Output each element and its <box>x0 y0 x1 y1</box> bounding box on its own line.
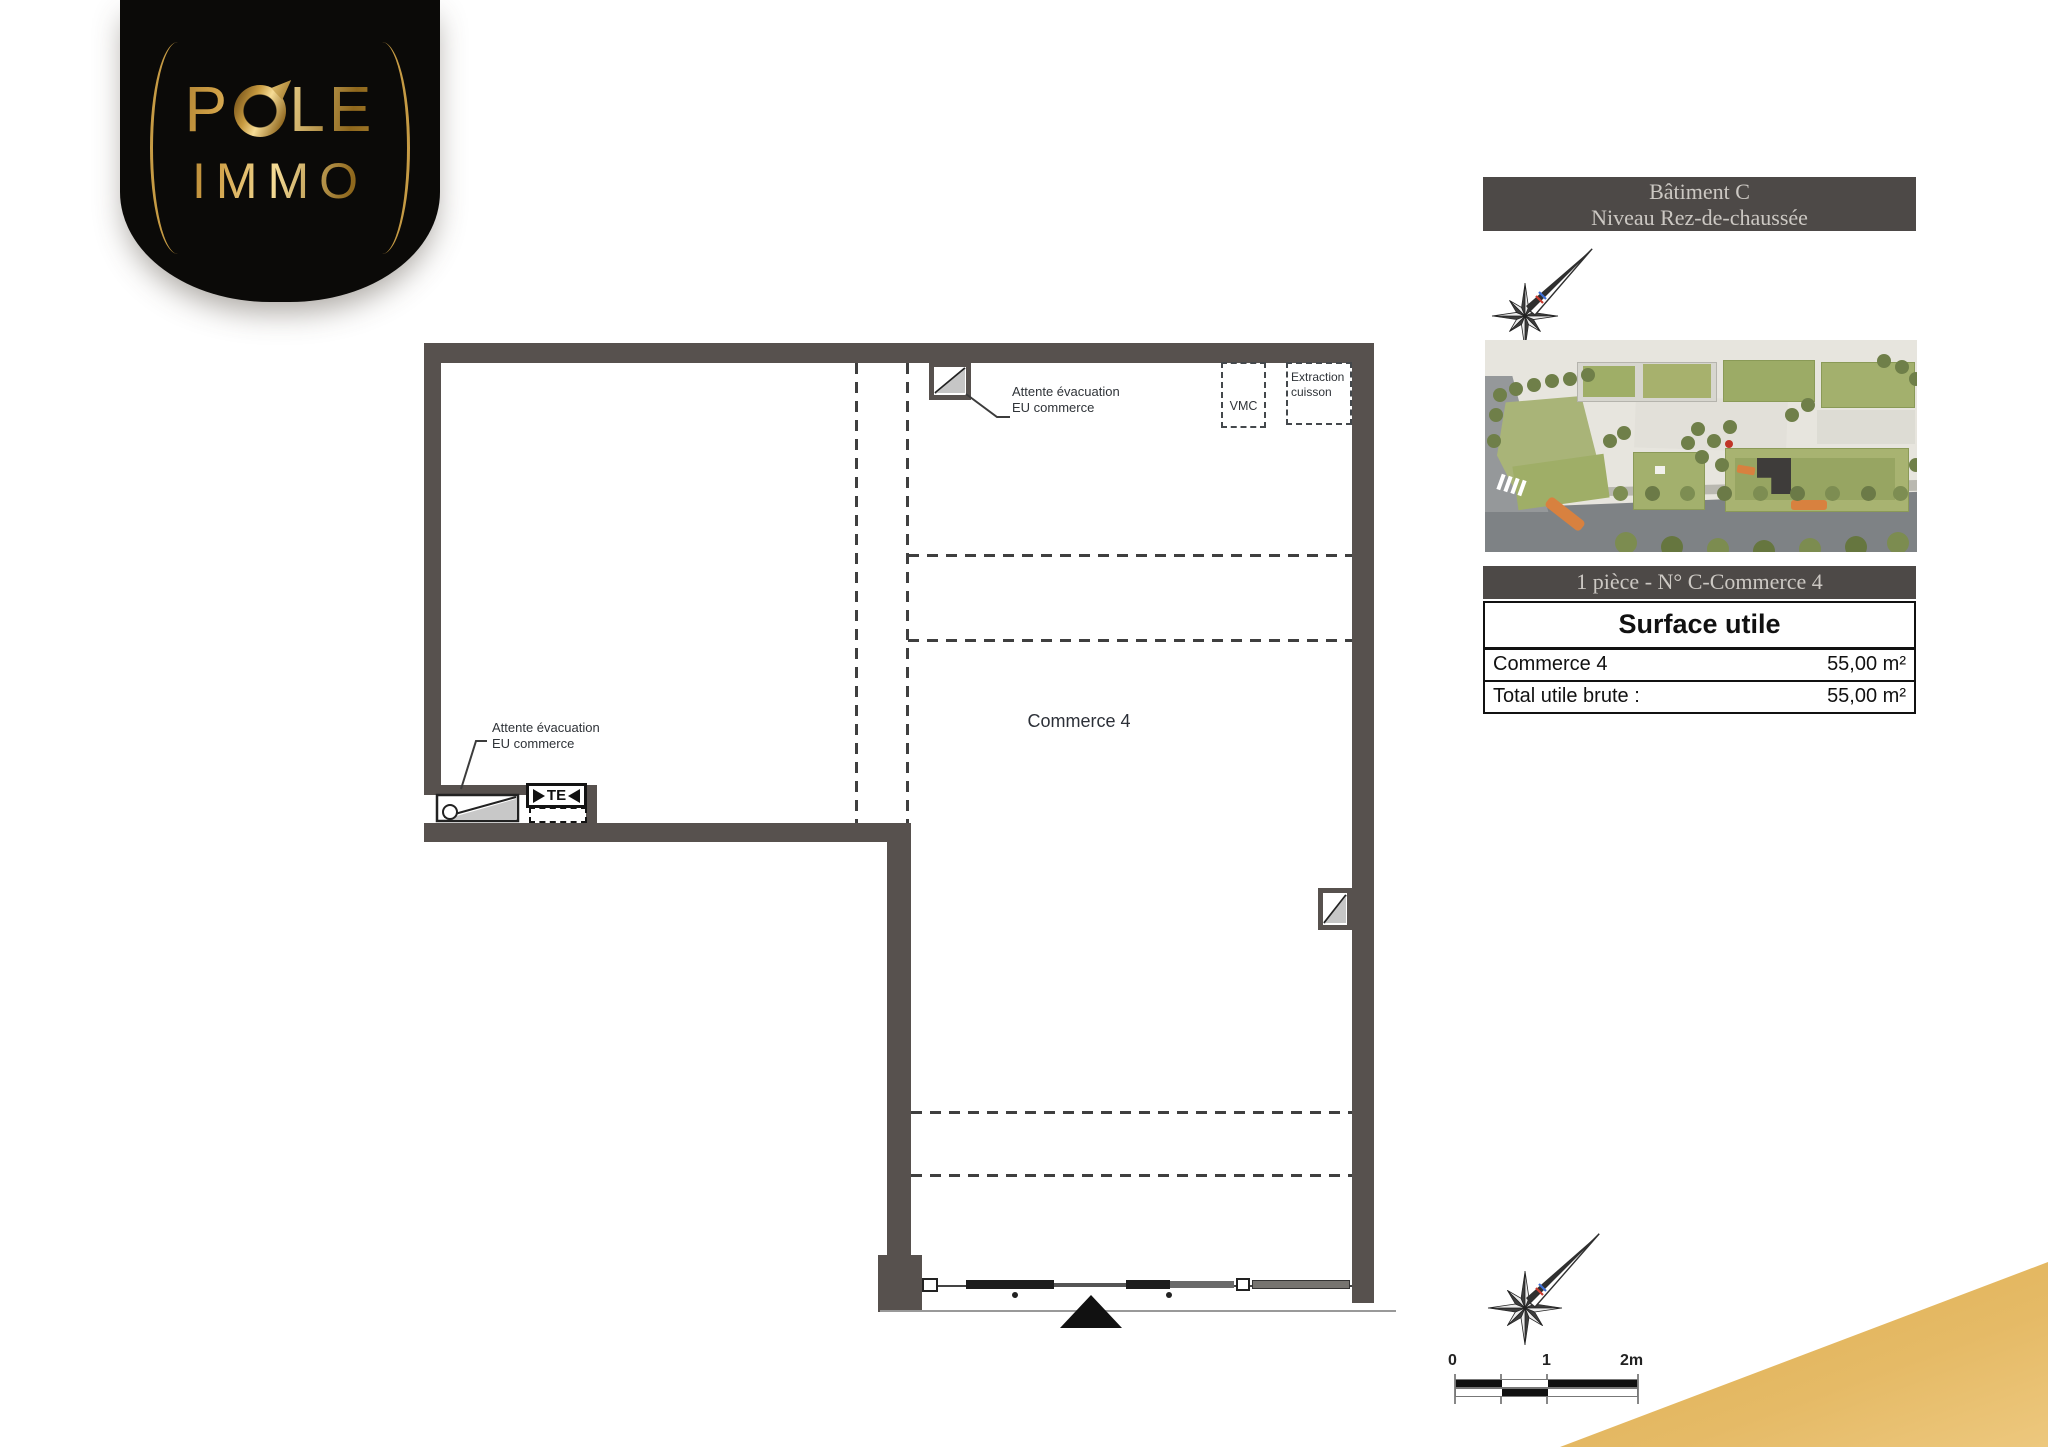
door-handle-dot <box>1166 1292 1172 1298</box>
aerial-shape <box>1680 486 1695 501</box>
aerial-shape <box>1487 434 1501 448</box>
te-meter-box: TE <box>526 783 587 808</box>
annotation-left: Attente évacuation EU commerce <box>492 720 600 752</box>
aerial-shape <box>1691 422 1705 436</box>
dashed-line-horizontal-4 <box>911 1174 1352 1177</box>
wall-bottom-left <box>424 823 911 842</box>
table-row: Commerce 4 55,00 m² <box>1485 650 1914 680</box>
aerial-shape <box>1723 420 1737 434</box>
table-row: Total utile brute : 55,00 m² <box>1485 680 1914 712</box>
aerial-shape <box>1643 364 1711 398</box>
ground-line <box>880 1310 1396 1312</box>
row-label: Total utile brute : <box>1493 685 1640 708</box>
aerial-shape <box>1493 388 1507 402</box>
aerial-shape <box>1545 374 1559 388</box>
logo-ring-o-icon <box>234 85 286 137</box>
aerial-site-view <box>1485 340 1917 552</box>
compass-rose-icon <box>1450 1212 1615 1357</box>
wall-inner-vertical <box>887 842 911 1255</box>
brochure-page: PLE IMMO VMC Extraction cuisson T <box>0 0 2048 1447</box>
storefront-panel <box>966 1280 1054 1289</box>
aerial-shape <box>1681 436 1695 450</box>
aerial-shape <box>1661 536 1683 552</box>
extraction-label-line2: cuisson <box>1291 385 1350 400</box>
aerial-shape <box>1715 458 1729 472</box>
aerial-shape <box>1613 486 1628 501</box>
aerial-shape <box>1861 486 1876 501</box>
aerial-shape <box>1753 486 1768 501</box>
panel-header: Bâtiment C Niveau Rez-de-chaussée <box>1483 177 1916 231</box>
extraction-label-line1: Extraction <box>1291 370 1350 385</box>
aerial-shape <box>1581 368 1595 382</box>
door-handle-dot <box>1012 1292 1018 1298</box>
logo-word-pole: PLE <box>120 72 440 146</box>
dashed-line-horizontal-2 <box>908 639 1352 642</box>
aerial-shape <box>1645 486 1660 501</box>
aerial-shape <box>1617 426 1631 440</box>
aerial-shape <box>1895 360 1909 374</box>
row-label: Commerce 4 <box>1493 653 1607 676</box>
te-right-triangle-icon <box>568 789 580 803</box>
wall-top <box>424 343 1374 363</box>
te-label: TE <box>547 787 566 804</box>
aerial-shape <box>1877 354 1891 368</box>
logo-le: LE <box>289 73 375 145</box>
scale-bar-upper <box>1455 1379 1638 1388</box>
storefront-panel <box>1170 1281 1234 1288</box>
row-value: 55,00 m² <box>1827 685 1906 708</box>
surface-table: Surface utile Commerce 4 55,00 m² Total … <box>1483 601 1916 714</box>
aerial-shape <box>1909 372 1917 386</box>
annotation-top: Attente évacuation EU commerce <box>1012 384 1120 416</box>
scale-tick-2m: 2m <box>1620 1352 1643 1370</box>
surface-table-title: Surface utile <box>1485 603 1914 650</box>
aerial-shape <box>1825 486 1840 501</box>
unit-title-bar: 1 pièce - N° C-Commerce 4 <box>1483 566 1916 599</box>
aerial-shape <box>1527 378 1541 392</box>
dashed-line-horizontal-1 <box>908 554 1352 557</box>
scale-bar-lower <box>1455 1388 1638 1397</box>
wall-left <box>424 343 441 785</box>
aerial-shape <box>1707 434 1721 448</box>
vmc-label: VMC <box>1230 399 1258 413</box>
logo-p-l: P <box>185 73 232 145</box>
vmc-box: VMC <box>1221 362 1266 428</box>
wall-right <box>1352 343 1374 1303</box>
aerial-shape <box>1603 434 1617 448</box>
scale-tick-1: 1 <box>1542 1352 1551 1370</box>
te-meter-sub-box <box>529 807 587 823</box>
storefront-stop <box>1236 1278 1250 1291</box>
dashed-line-vertical-2 <box>906 363 909 823</box>
evacuation-duct-icon <box>1318 888 1352 930</box>
aerial-shape <box>1893 486 1908 501</box>
aerial-shape <box>1615 532 1637 552</box>
aerial-shape <box>1717 486 1732 501</box>
aerial-shape <box>1785 408 1799 422</box>
annotation-top-line2: EU commerce <box>1012 400 1120 416</box>
dashed-line-vertical-1 <box>855 363 858 823</box>
evacuation-duct-icon <box>929 362 971 400</box>
aerial-shape <box>1790 486 1805 501</box>
storefront-panel <box>1252 1280 1350 1289</box>
te-left-triangle-icon <box>533 789 545 803</box>
scale-tick-0: 0 <box>1448 1352 1457 1370</box>
extraction-box: Extraction cuisson <box>1286 362 1352 425</box>
aerial-shape <box>1489 408 1503 422</box>
dashed-line-horizontal-3 <box>911 1111 1352 1114</box>
storefront-stop <box>922 1278 938 1292</box>
wall-inner-post <box>878 1255 922 1312</box>
room-label: Commerce 4 <box>999 711 1159 732</box>
aerial-shape <box>1845 536 1867 552</box>
aerial-shape <box>1817 410 1915 444</box>
aerial-shape <box>1801 398 1815 412</box>
aerial-shape <box>1723 360 1815 402</box>
aerial-shape <box>1633 452 1705 510</box>
compass-rose-icon <box>1455 228 1605 353</box>
storefront-panel <box>1054 1283 1126 1287</box>
aerial-shape <box>1655 466 1665 474</box>
logo-word-immo: IMMO <box>120 152 440 210</box>
row-value: 55,00 m² <box>1827 653 1906 676</box>
aerial-shape <box>1909 458 1917 472</box>
wall-niche-stub <box>586 795 597 823</box>
aerial-shape <box>1695 450 1709 464</box>
aerial-shape <box>1887 532 1909 552</box>
aerial-shape <box>1791 500 1827 510</box>
aerial-shape <box>1725 440 1733 448</box>
pole-immo-logo: PLE IMMO <box>120 0 440 302</box>
annotation-left-line1: Attente évacuation <box>492 720 600 736</box>
annotation-left-line2: EU commerce <box>492 736 600 752</box>
annotation-top-line1: Attente évacuation <box>1012 384 1120 400</box>
building-name: Bâtiment C <box>1483 179 1916 205</box>
storefront-panel <box>1126 1280 1170 1289</box>
aerial-shape <box>1509 382 1523 396</box>
aerial-shape <box>1563 372 1577 386</box>
